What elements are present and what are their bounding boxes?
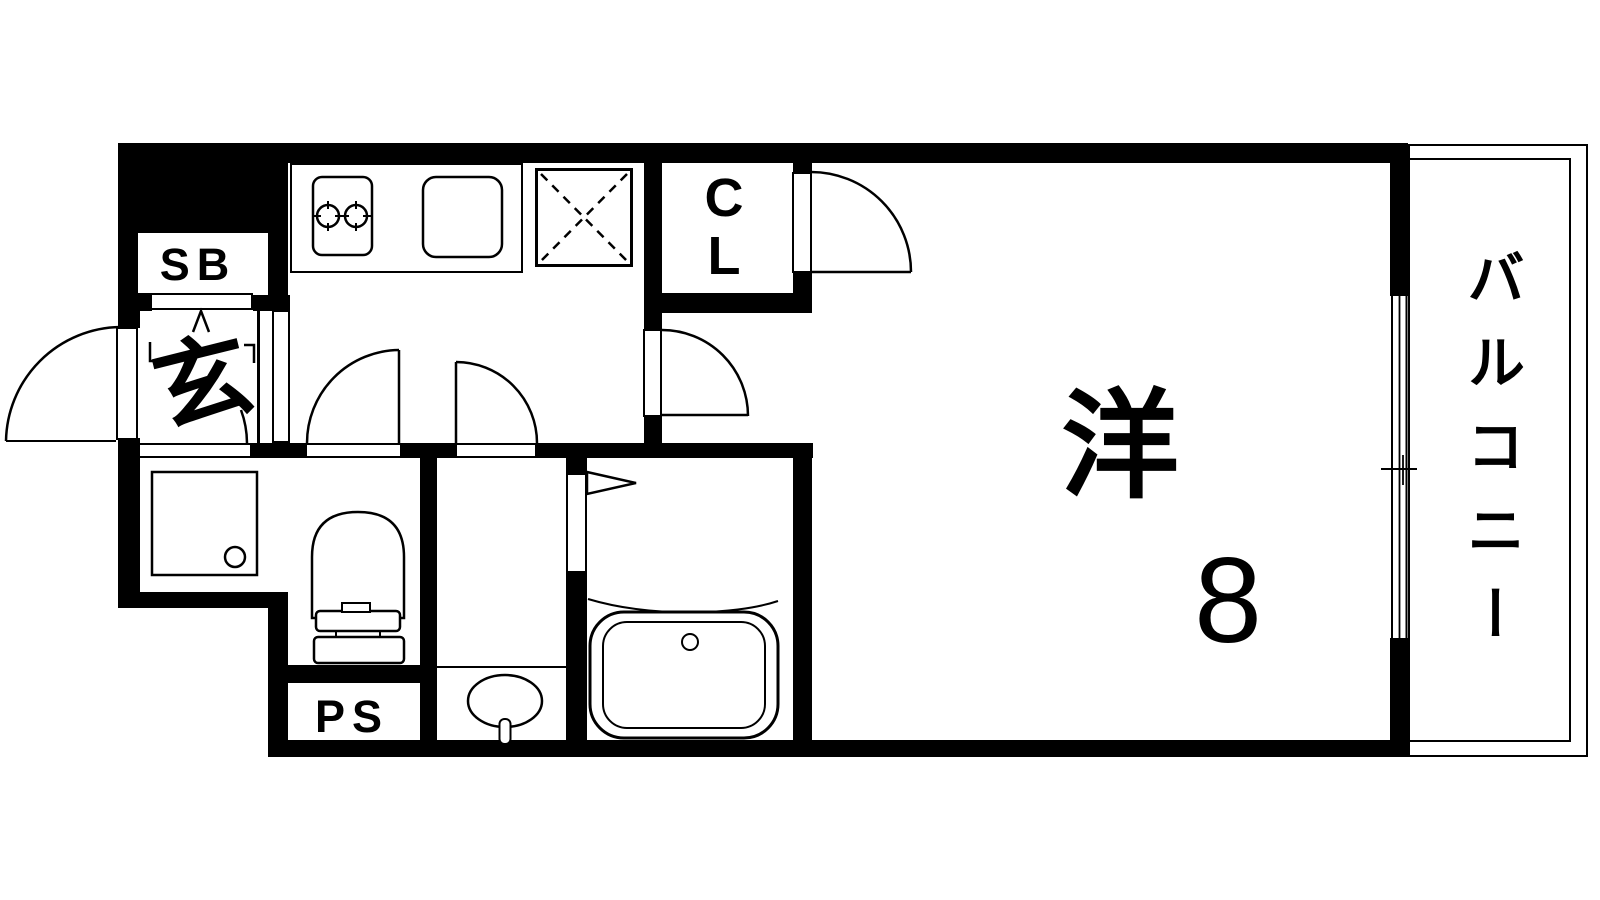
wall-left xyxy=(118,458,140,594)
closet-door-panel xyxy=(792,172,812,273)
wall xyxy=(644,293,812,313)
closet-label-line1: C xyxy=(705,169,744,227)
toilet-icon xyxy=(312,512,404,663)
wall xyxy=(644,163,662,297)
wall xyxy=(288,665,420,683)
main-room-label: 洋 xyxy=(1050,370,1190,500)
wall xyxy=(118,438,140,458)
toilet-door-swing xyxy=(307,350,399,443)
wall xyxy=(793,443,812,757)
wall xyxy=(566,572,587,740)
wall-bottom xyxy=(268,740,1408,757)
washing-machine-pan-icon xyxy=(152,472,257,575)
wall-top xyxy=(118,143,1408,163)
washbasin-icon xyxy=(437,667,566,744)
wall xyxy=(400,443,458,458)
entrance-partition-panel xyxy=(272,310,290,443)
entrance-door-swing xyxy=(6,327,120,441)
entrance-door-panel xyxy=(116,327,138,440)
wall xyxy=(1390,637,1408,757)
wall xyxy=(118,233,138,295)
wall xyxy=(268,592,288,757)
entrance-label: 玄 xyxy=(137,311,264,438)
wall xyxy=(644,416,662,443)
sliding-window xyxy=(1390,296,1408,638)
toilet-door-opening xyxy=(307,443,400,458)
wall xyxy=(253,295,290,311)
wall xyxy=(1390,143,1408,297)
wall xyxy=(118,293,152,311)
closet-door-swing xyxy=(811,172,911,272)
bath-door-panel xyxy=(566,473,587,573)
bathtub-icon xyxy=(588,599,778,738)
kitchen-counter xyxy=(290,163,523,273)
closet-label: C L xyxy=(692,168,756,286)
wall xyxy=(268,233,288,295)
wall xyxy=(644,313,662,330)
wall xyxy=(118,592,288,608)
wall xyxy=(566,458,587,474)
wall xyxy=(535,443,813,458)
refrigerator-space xyxy=(535,168,633,267)
pipe-space-label: PS xyxy=(288,692,416,742)
wall-block-topleft xyxy=(118,143,288,233)
bath-door-icon xyxy=(587,472,636,494)
floor-plan: SB 玄 C L PS 洋 8 バルコニー xyxy=(0,0,1600,900)
main-room-size-label: 8 xyxy=(1178,540,1278,660)
main-room-door-swing xyxy=(662,330,748,416)
main-room-door-panel xyxy=(643,329,662,417)
washroom-door-swing xyxy=(456,362,537,443)
washroom-door-opening xyxy=(457,443,535,458)
wall xyxy=(250,443,308,458)
closet-label-line2: L xyxy=(708,227,741,285)
wall xyxy=(420,458,437,757)
balcony-label: バルコニー xyxy=(1452,228,1528,688)
shoe-box-label: SB xyxy=(138,240,258,290)
wall xyxy=(793,272,812,313)
